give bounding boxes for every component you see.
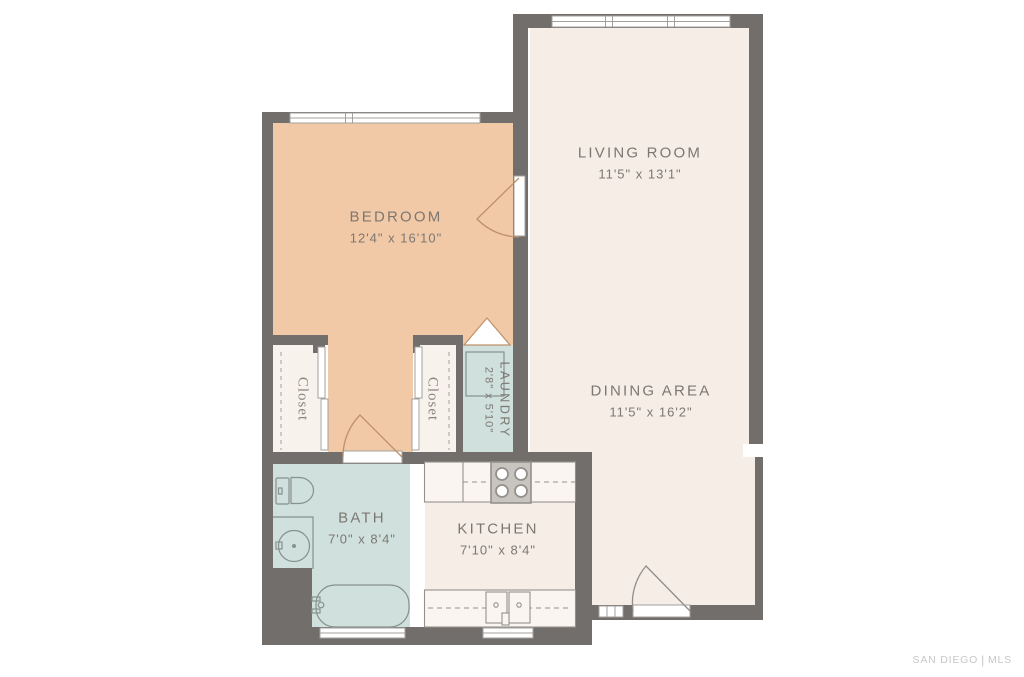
watermark: SAN DIEGO | MLS — [913, 653, 1012, 667]
bedroom-hall-floor — [328, 345, 413, 455]
dining-area-label: DINING AREA 11'5" x 16'2" — [591, 383, 712, 420]
floor-plan-drawing — [0, 0, 1024, 677]
watermark-right: MLS — [988, 654, 1012, 666]
living-room-dims: 11'5" x 13'1" — [578, 167, 702, 182]
closet-right-label: Closet — [424, 377, 441, 421]
dining-area-dims: 11'5" x 16'2" — [591, 405, 712, 420]
kitchen-window — [483, 628, 533, 638]
kitchen-label: KITCHEN 7'10" x 8'4" — [457, 521, 538, 558]
laundry-dims: 2'8" x 5'10" — [483, 361, 495, 438]
dining-area-floor — [592, 452, 755, 605]
laundry-name: LAUNDRY — [498, 361, 512, 438]
stove-icon — [491, 462, 531, 503]
living-room-window — [552, 16, 730, 27]
bedroom-dims: 12'4" x 16'10" — [350, 231, 443, 246]
kitchen-dims: 7'10" x 8'4" — [457, 543, 538, 558]
laundry-label: LAUNDRY 2'8" x 5'10" — [483, 361, 512, 438]
wall-break — [743, 444, 763, 457]
dining-area-name: DINING AREA — [591, 383, 712, 400]
living-room-label: LIVING ROOM 11'5" x 13'1" — [578, 145, 702, 182]
bedroom-label: BEDROOM 12'4" x 16'10" — [350, 209, 443, 246]
bedroom-window — [290, 113, 480, 123]
watermark-divider: | — [981, 653, 985, 667]
bedroom-name: BEDROOM — [350, 209, 443, 226]
dining-window — [599, 606, 623, 617]
bath-name: BATH — [328, 510, 396, 527]
living-room-name: LIVING ROOM — [578, 145, 702, 162]
bath-dims: 7'0" x 8'4" — [328, 532, 396, 547]
closet-left-label: Closet — [294, 377, 311, 421]
floor-plan: LIVING ROOM 11'5" x 13'1" BEDROOM 12'4" … — [0, 0, 1024, 677]
bathroom-window — [320, 628, 405, 638]
bath-label: BATH 7'0" x 8'4" — [328, 510, 396, 547]
kitchen-name: KITCHEN — [457, 521, 538, 538]
watermark-left: SAN DIEGO — [913, 654, 979, 666]
